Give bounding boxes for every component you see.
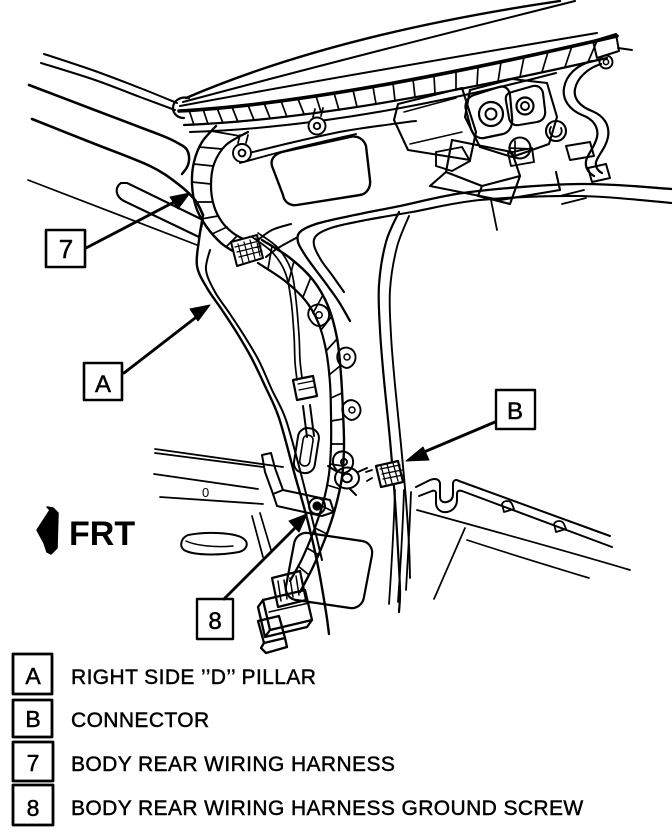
svg-text:0: 0	[202, 485, 209, 500]
svg-text:B: B	[507, 398, 523, 425]
svg-text:FRT: FRT	[69, 515, 135, 553]
svg-text:8: 8	[27, 795, 40, 821]
svg-text:A: A	[95, 371, 111, 398]
svg-text:B: B	[25, 706, 40, 732]
svg-text:8: 8	[208, 608, 221, 635]
svg-text:7: 7	[59, 234, 73, 264]
svg-text:7: 7	[27, 750, 40, 776]
svg-text:A: A	[25, 663, 41, 689]
